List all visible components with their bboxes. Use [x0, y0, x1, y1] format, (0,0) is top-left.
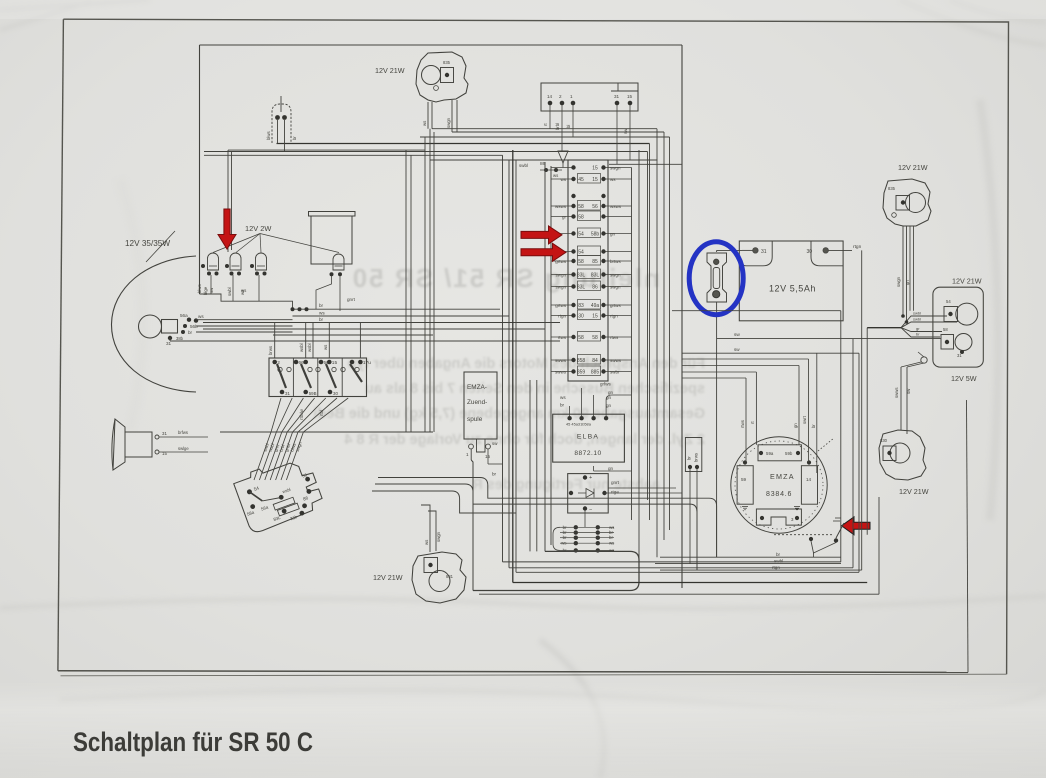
svg-text:ws: ws — [198, 314, 204, 319]
svg-text:sw: sw — [623, 128, 628, 134]
svg-text:br: br — [776, 552, 781, 557]
svg-text:swgn: swgn — [446, 117, 451, 128]
svg-text:swrt: swrt — [802, 415, 807, 424]
svg-text:br: br — [563, 525, 567, 530]
svg-text:ws: ws — [609, 548, 615, 553]
svg-text:Zuend-: Zuend- — [467, 399, 487, 406]
svg-text:31: 31 — [614, 94, 620, 99]
svg-text:swbl: swbl — [519, 163, 528, 168]
svg-text:sw: sw — [734, 333, 740, 338]
svg-text:59B: 59B — [309, 391, 317, 396]
svg-text:br: br — [492, 472, 497, 477]
svg-text:br: br — [811, 424, 816, 428]
svg-text:56b: 56b — [190, 324, 198, 329]
svg-text:br: br — [319, 303, 324, 308]
svg-text:15: 15 — [592, 165, 598, 171]
svg-text:56: 56 — [592, 204, 598, 210]
svg-text:31: 31 — [162, 431, 167, 436]
svg-text:bl: bl — [566, 125, 571, 128]
svg-text:858: 858 — [577, 358, 586, 364]
svg-text:84: 84 — [592, 358, 598, 364]
svg-text:ws: ws — [422, 121, 427, 126]
svg-text:83L: 83L — [591, 272, 600, 278]
svg-text:885: 885 — [591, 369, 600, 375]
svg-text:brbl: brbl — [555, 123, 560, 130]
svg-text:14: 14 — [806, 477, 812, 482]
svg-text:15: 15 — [332, 360, 338, 366]
svg-text:15: 15 — [627, 94, 633, 99]
svg-text:830: 830 — [880, 438, 888, 443]
svg-text:15: 15 — [592, 177, 598, 183]
svg-text:br: br — [560, 403, 565, 408]
svg-text:br: br — [563, 535, 567, 540]
svg-text:15: 15 — [592, 313, 598, 319]
svg-text:rtgn: rtgn — [772, 565, 780, 570]
svg-text:49a: 49a — [591, 303, 600, 309]
svg-text:8384.6: 8384.6 — [766, 491, 792, 498]
svg-text:ws: ws — [319, 311, 325, 316]
svg-text:45 45a31b58a: 45 45a31b58a — [566, 422, 592, 427]
svg-text:rtgn: rtgn — [853, 244, 862, 250]
svg-text:br: br — [609, 535, 613, 540]
svg-text:grfws: grfws — [600, 382, 612, 387]
svg-text:ws: ws — [609, 541, 615, 546]
svg-text:58: 58 — [592, 335, 598, 341]
svg-text:56a: 56a — [180, 313, 188, 318]
svg-text:gn: gn — [793, 423, 798, 428]
svg-text:2 Zyl. der langen, doch für oh: 2 Zyl. der langen, doch für ohne zu Vorl… — [344, 432, 705, 448]
svg-text:12V 21W: 12V 21W — [898, 163, 928, 172]
svg-text:14: 14 — [547, 94, 553, 99]
svg-text:swbl: swbl — [913, 317, 921, 322]
svg-text:EMZA-: EMZA- — [467, 384, 487, 391]
svg-text:59a: 59a — [766, 451, 774, 456]
svg-text:br: br — [319, 317, 324, 322]
svg-text:blws: blws — [197, 284, 202, 293]
svg-text:−: − — [589, 507, 592, 513]
svg-text:17u: 17u — [363, 360, 371, 366]
svg-text:54: 54 — [946, 299, 951, 304]
svg-text:1: 1 — [570, 94, 573, 99]
svg-text:brfws: brfws — [178, 430, 188, 435]
svg-text:31: 31 — [166, 341, 172, 346]
svg-text:ws: ws — [560, 395, 566, 400]
svg-text:59b: 59b — [785, 451, 793, 456]
svg-text:ws: ws — [241, 288, 247, 293]
svg-text:wsbl: wsbl — [307, 343, 312, 352]
svg-text:swbl: swbl — [774, 559, 783, 564]
svg-text:83: 83 — [578, 303, 584, 309]
svg-text:rtge: rtge — [611, 490, 619, 495]
svg-text:br: br — [687, 456, 692, 460]
svg-text:835: 835 — [443, 60, 451, 65]
svg-text:59: 59 — [741, 477, 747, 482]
svg-text:ws: ws — [609, 525, 615, 530]
svg-text:gn: gn — [905, 280, 910, 285]
svg-text:Für den Anspruch des Motors di: Für den Anspruch des Motors die Angaben … — [347, 356, 705, 372]
svg-text:swgn: swgn — [896, 276, 901, 287]
svg-text:8872.10: 8872.10 — [574, 450, 601, 457]
svg-text:83L: 83L — [577, 284, 586, 290]
svg-text:ws: ws — [424, 540, 429, 545]
svg-text:12V 5,5Ah: 12V 5,5Ah — [769, 284, 816, 294]
svg-text:gn: gn — [608, 466, 614, 471]
svg-text:br: br — [188, 330, 193, 335]
svg-text:gnrt: gnrt — [347, 297, 356, 302]
svg-text:ws: ws — [561, 541, 567, 546]
svg-text:831: 831 — [446, 574, 454, 579]
svg-text:swbl: swbl — [227, 287, 232, 296]
svg-text:86: 86 — [592, 284, 598, 290]
svg-text:swbl: swbl — [913, 311, 921, 316]
svg-text:31: 31 — [761, 249, 767, 255]
svg-text:br: br — [563, 548, 567, 553]
svg-text:38b: 38b — [176, 336, 184, 341]
svg-text:ws: ws — [323, 345, 328, 350]
svg-text:+: + — [589, 475, 592, 481]
svg-text:31: 31 — [285, 391, 290, 396]
svg-text:30: 30 — [333, 391, 338, 396]
svg-text:blws: blws — [266, 131, 271, 140]
svg-text:85: 85 — [592, 259, 598, 265]
svg-text:ws: ws — [553, 173, 558, 178]
svg-text:58: 58 — [578, 259, 584, 265]
svg-text:swgn: swgn — [436, 531, 441, 542]
svg-text:brws: brws — [694, 453, 699, 462]
svg-text:30: 30 — [578, 313, 584, 319]
svg-text:1: 1 — [466, 452, 469, 457]
svg-text:12V 35/35W: 12V 35/35W — [125, 239, 170, 248]
svg-text:54: 54 — [578, 231, 584, 237]
svg-text:12V 2W: 12V 2W — [245, 224, 271, 233]
svg-text:sw: sw — [734, 347, 740, 352]
svg-text:58: 58 — [578, 204, 584, 210]
svg-text:12V 21W: 12V 21W — [899, 487, 929, 496]
svg-text:spule: spule — [467, 416, 483, 423]
svg-text:30: 30 — [806, 249, 812, 255]
svg-text:swlge: swlge — [178, 446, 189, 451]
svg-text:spezifischen Bussche in den Se: spezifischen Bussche in den Seiten 7 bis… — [365, 381, 705, 397]
svg-text:835: 835 — [888, 186, 896, 191]
svg-text:wsbl: wsbl — [299, 343, 304, 352]
svg-text:83L: 83L — [577, 272, 586, 278]
svg-text:brws: brws — [268, 346, 273, 355]
svg-text:EMZA: EMZA — [770, 472, 795, 481]
svg-text:859: 859 — [577, 369, 586, 375]
svg-text:58: 58 — [578, 335, 584, 341]
svg-text:sw: sw — [906, 388, 911, 394]
svg-text:br: br — [292, 136, 297, 140]
svg-text:58b: 58b — [591, 231, 600, 237]
svg-text:gnrt: gnrt — [611, 480, 620, 485]
svg-text:gn: gn — [606, 403, 612, 408]
svg-text:Schaltplan für SR 50 C: Schaltplan für SR 50 C — [73, 727, 313, 757]
svg-text:rtws: rtws — [740, 420, 745, 428]
svg-text:58: 58 — [943, 327, 948, 332]
svg-text:ELBA: ELBA — [577, 434, 599, 441]
svg-text:58: 58 — [578, 214, 584, 220]
svg-text:54: 54 — [578, 249, 584, 255]
svg-text:sw: sw — [209, 287, 214, 293]
svg-text:swws: swws — [894, 387, 899, 398]
svg-text:12V 21W: 12V 21W — [373, 573, 403, 582]
svg-text:2: 2 — [559, 94, 562, 99]
svg-text:12V 21W: 12V 21W — [952, 277, 982, 286]
svg-text:sw: sw — [492, 441, 498, 446]
svg-text:45: 45 — [578, 177, 584, 183]
svg-text:12V 5W: 12V 5W — [951, 374, 977, 383]
svg-text:12V 21W: 12V 21W — [375, 66, 405, 75]
